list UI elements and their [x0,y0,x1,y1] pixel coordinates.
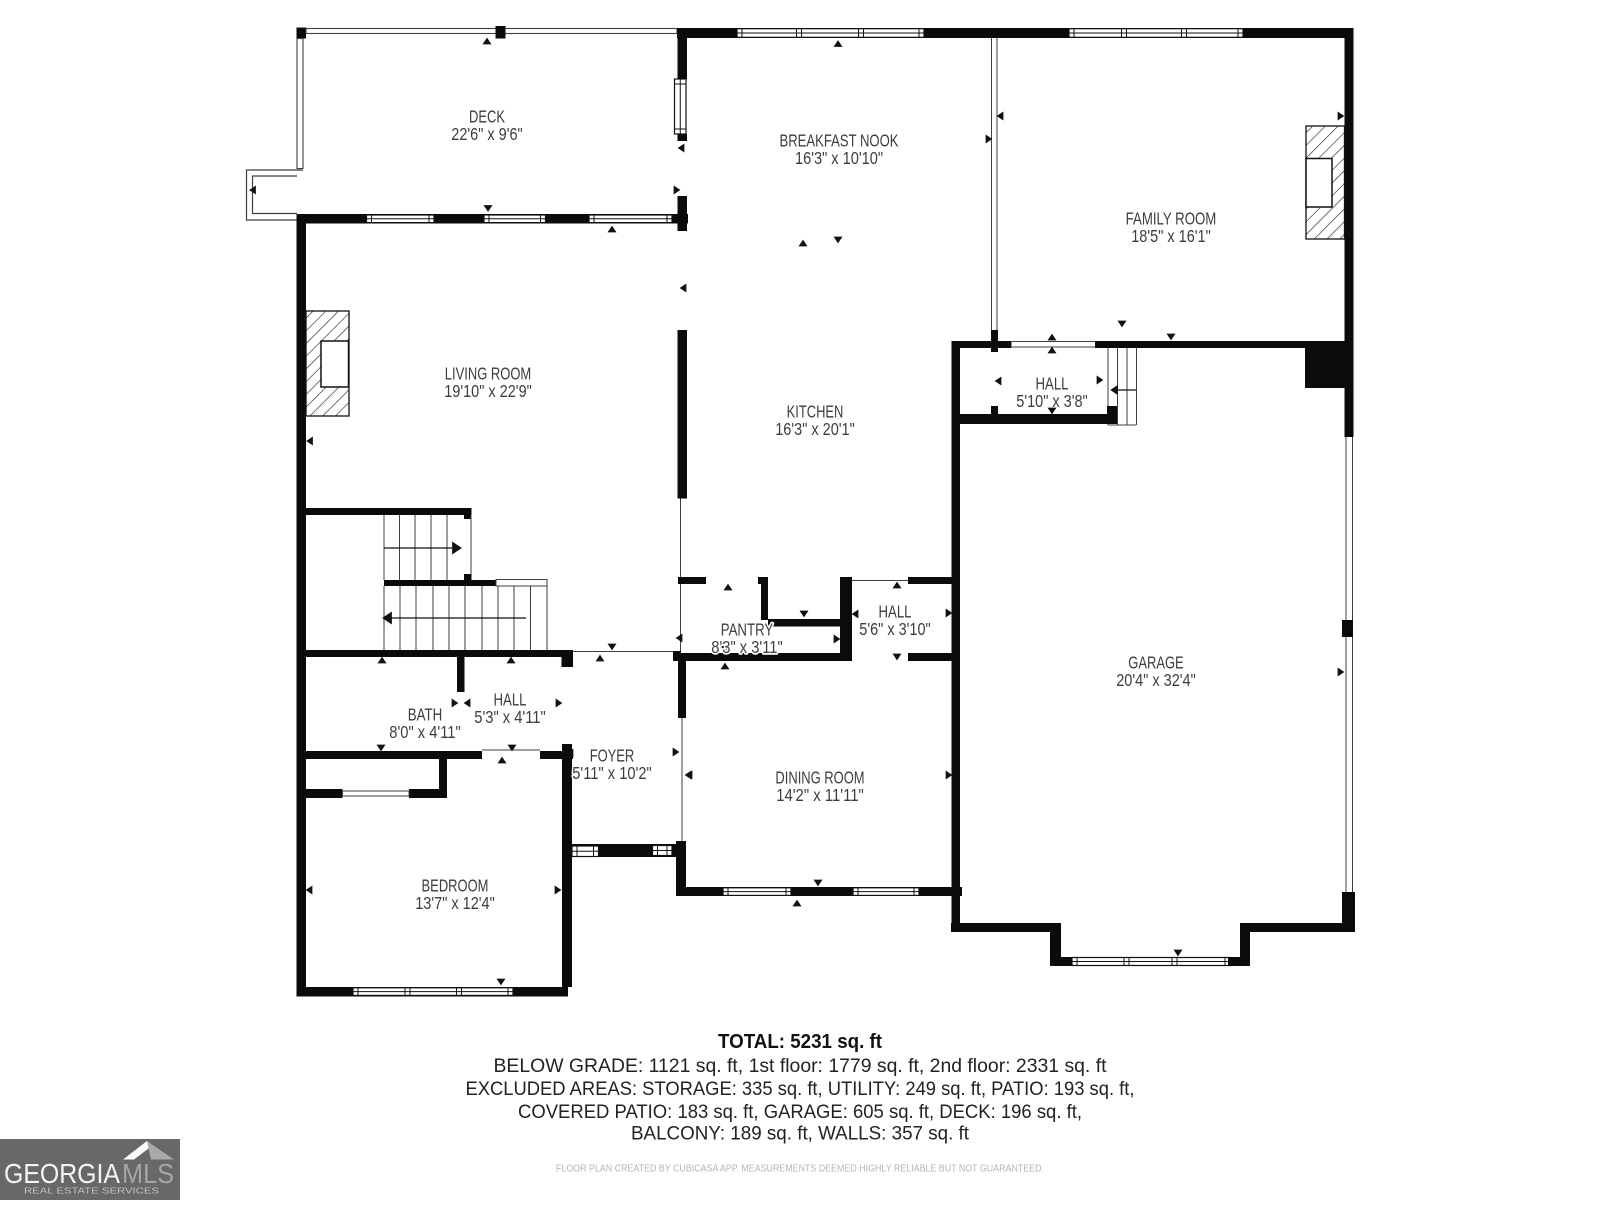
svg-text:18'5" x 16'1": 18'5" x 16'1" [1131,226,1211,246]
svg-text:5'3" x 4'11": 5'3" x 4'11" [474,707,545,727]
svg-text:BALCONY: 189 sq. ft, WALLS: 35: BALCONY: 189 sq. ft, WALLS: 357 sq. ft [631,1123,970,1145]
svg-text:BELOW GRADE: 1121 sq. ft, 1st: BELOW GRADE: 1121 sq. ft, 1st floor: 177… [494,1055,1108,1077]
svg-text:TOTAL: 5231 sq. ft: TOTAL: 5231 sq. ft [718,1031,882,1053]
svg-text:16'3" x 20'1": 16'3" x 20'1" [775,419,855,439]
svg-text:5'6" x 3'10": 5'6" x 3'10" [859,619,930,639]
svg-text:22'6" x 9'6": 22'6" x 9'6" [451,124,522,144]
svg-text:20'4" x 32'4": 20'4" x 32'4" [1116,670,1196,690]
svg-text:13'7" x 12'4": 13'7" x 12'4" [415,893,495,913]
svg-text:COVERED PATIO: 183 sq. ft, GAR: COVERED PATIO: 183 sq. ft, GARAGE: 605 s… [518,1101,1082,1123]
svg-text:8'3" x 3'11": 8'3" x 3'11" [711,637,782,657]
svg-text:14'2" x 11'11": 14'2" x 11'11" [776,785,864,805]
svg-text:MLS: MLS [122,1158,174,1189]
svg-text:FLOOR PLAN CREATED BY CUBICASA: FLOOR PLAN CREATED BY CUBICASA APP. MEAS… [556,1164,1044,1175]
svg-text:EXCLUDED AREAS: STORAGE: 335 s: EXCLUDED AREAS: STORAGE: 335 sq. ft, UTI… [466,1078,1135,1100]
svg-text:5'11" x 10'2": 5'11" x 10'2" [572,763,652,783]
svg-text:16'3" x 10'10": 16'3" x 10'10" [795,148,883,168]
svg-text:REAL ESTATE SERVICES: REAL ESTATE SERVICES [24,1186,159,1196]
svg-text:19'10" x 22'9": 19'10" x 22'9" [444,381,532,401]
svg-text:8'0" x 4'11": 8'0" x 4'11" [389,722,460,742]
svg-text:GEORGIA: GEORGIA [4,1158,120,1189]
